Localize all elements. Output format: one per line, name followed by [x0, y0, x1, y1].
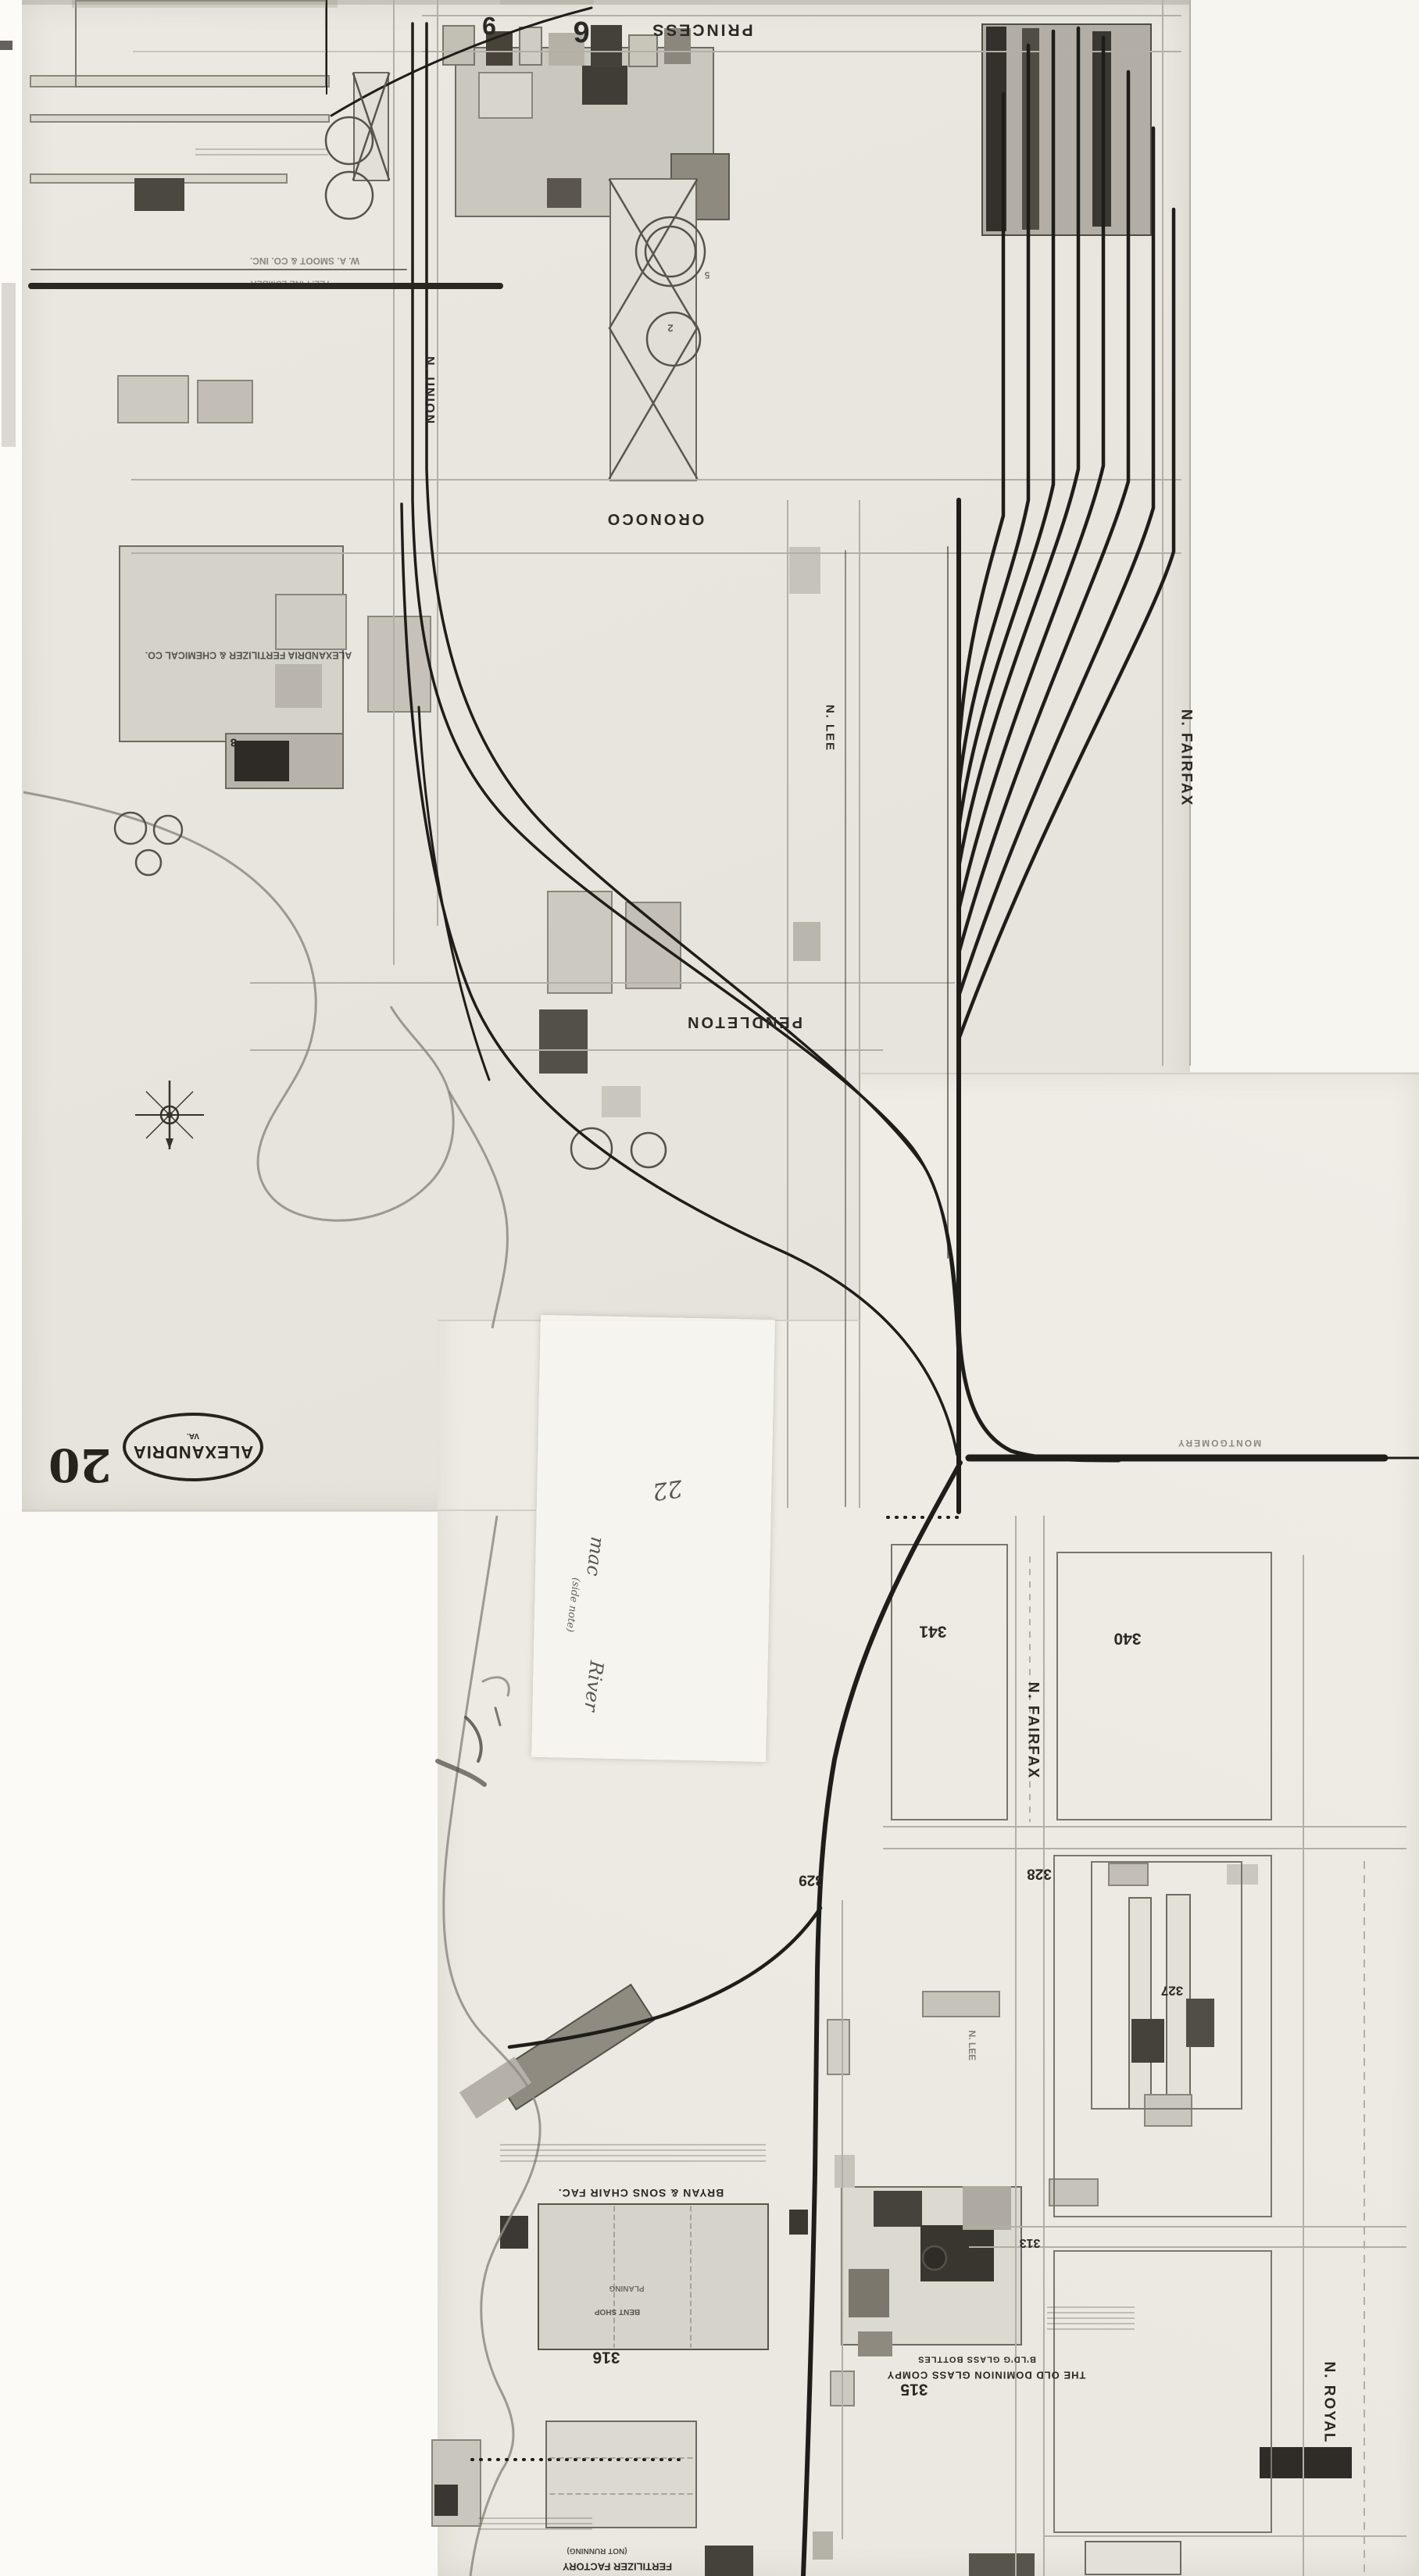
- label-old-dominion-glass: THE OLD DOMINION GLASS COMPY: [887, 2371, 1086, 2381]
- railroad-track: [331, 8, 592, 116]
- street-label-n-lee-lower: N. LEE: [967, 2031, 977, 2061]
- sheet-number: 20: [48, 1442, 112, 1488]
- railroad-tracks: [31, 0, 1419, 2576]
- label-not-running: (NOT RUNNING): [567, 2546, 627, 2554]
- block-number-6: 6: [573, 16, 589, 46]
- shoreline-path: [449, 1091, 507, 1328]
- stamp-state-text: VA.: [187, 1432, 199, 1441]
- street-label-pendleton: PENDLETON: [685, 1014, 802, 1030]
- building-number-2: 2: [667, 323, 673, 334]
- railroad-track: [614, 2206, 691, 2347]
- railroad-track: [353, 73, 389, 180]
- stamp-city-text: ALEXANDRIA: [133, 1442, 253, 1463]
- block-number-327: 327: [1161, 1985, 1183, 1998]
- railroad-track: [959, 128, 1153, 996]
- label-fertilizer-factory: FERTILIZER FACTORY: [563, 2562, 672, 2572]
- railroad-track: [402, 504, 957, 1455]
- street-label-n-fairfax-lower: N. FAIRFAX: [1026, 1682, 1041, 1780]
- railroad-track: [495, 1708, 500, 1725]
- shoreline-path: [23, 792, 453, 1220]
- block-number-329: 329: [799, 1873, 824, 1888]
- railroad-track: [509, 1908, 820, 2047]
- railroad-track: [609, 180, 697, 478]
- block-number-341: 341: [919, 1624, 946, 1640]
- railroad-track: [466, 1717, 481, 1761]
- railroad-track: [427, 23, 959, 1379]
- block-number-315: 315: [900, 2381, 928, 2398]
- building-number-5: 5: [705, 270, 710, 280]
- tank-circles: [115, 117, 946, 2270]
- block-number-316: 316: [592, 2349, 620, 2366]
- label-bryan-sons-chair-fac: BRYAN & SONS CHAIR FAC.: [558, 2188, 724, 2199]
- faint-note-text: [500, 2144, 766, 2166]
- railroad-track: [438, 1761, 484, 1785]
- building-number-3: 3: [231, 737, 237, 749]
- railroad-track: [483, 1677, 509, 1695]
- railroad-track: [959, 1322, 1119, 1460]
- street-label-n-union: N. UNION: [423, 356, 435, 425]
- label-smoot-co: W. A. SMOOT & CO. INC.: [250, 256, 359, 266]
- tank-circle: [631, 1133, 666, 1167]
- railroad-track: [959, 209, 1174, 1039]
- railroad-track: [959, 38, 1103, 910]
- street-label-n-lee-upper: N. LEE: [824, 705, 836, 752]
- railroad-track: [550, 2458, 694, 2494]
- handwriting-mac: mac: [584, 1535, 607, 1577]
- label-bent-shop: BENT SHOP: [595, 2307, 640, 2315]
- street-label-princess: PRINCESS: [650, 22, 752, 38]
- scanned-sanborn-map-page: ALEXANDRIA VA. 20 PRINCESS96ORONOCOPENDL…: [0, 0, 1419, 2576]
- faint-note-text: [195, 148, 328, 159]
- street-label-montgomery: MONTGOMERY: [1177, 1438, 1261, 1448]
- railroad-track: [959, 94, 1003, 750]
- tank-circle: [136, 850, 161, 875]
- label-pine-lumber: YEL. PINE LUMBER: [250, 279, 331, 288]
- railroad-track: [419, 707, 489, 1080]
- faint-note-text: [478, 2517, 592, 2534]
- tank-circle: [326, 172, 373, 219]
- street-label-n-fairfax-upper: N. FAIRFAX: [1179, 709, 1194, 807]
- handwriting-river: River: [581, 1660, 606, 1712]
- label-glass-bottles: B'LD'G GLASS BOTTLES: [917, 2355, 1036, 2363]
- paper-patch-overlay: [531, 1315, 775, 1762]
- compass-rose-icon: [132, 1077, 207, 1152]
- faint-note-text: [1047, 2306, 1135, 2334]
- tank-circle: [923, 2246, 946, 2270]
- street-label-oronoco: ORONOCO: [606, 511, 705, 527]
- block-number-340: 340: [1113, 1631, 1141, 1647]
- shoreline: [23, 792, 540, 2576]
- street-label-n-royal: N. ROYAL: [1322, 2361, 1337, 2443]
- handwriting-22: 22: [651, 1475, 684, 1502]
- block-number-328: 328: [1027, 1867, 1052, 1881]
- alexandria-oval-stamp: ALEXANDRIA VA.: [123, 1413, 263, 1481]
- label-planing: PLANING: [609, 2284, 645, 2292]
- label-alexandria-fertilizer: ALEXANDRIA FERTILIZER & CHEMICAL CO.: [145, 650, 352, 660]
- block-number-313: 313: [1020, 2236, 1041, 2249]
- tank-circle: [571, 1128, 612, 1169]
- block-number-9: 9: [482, 13, 496, 38]
